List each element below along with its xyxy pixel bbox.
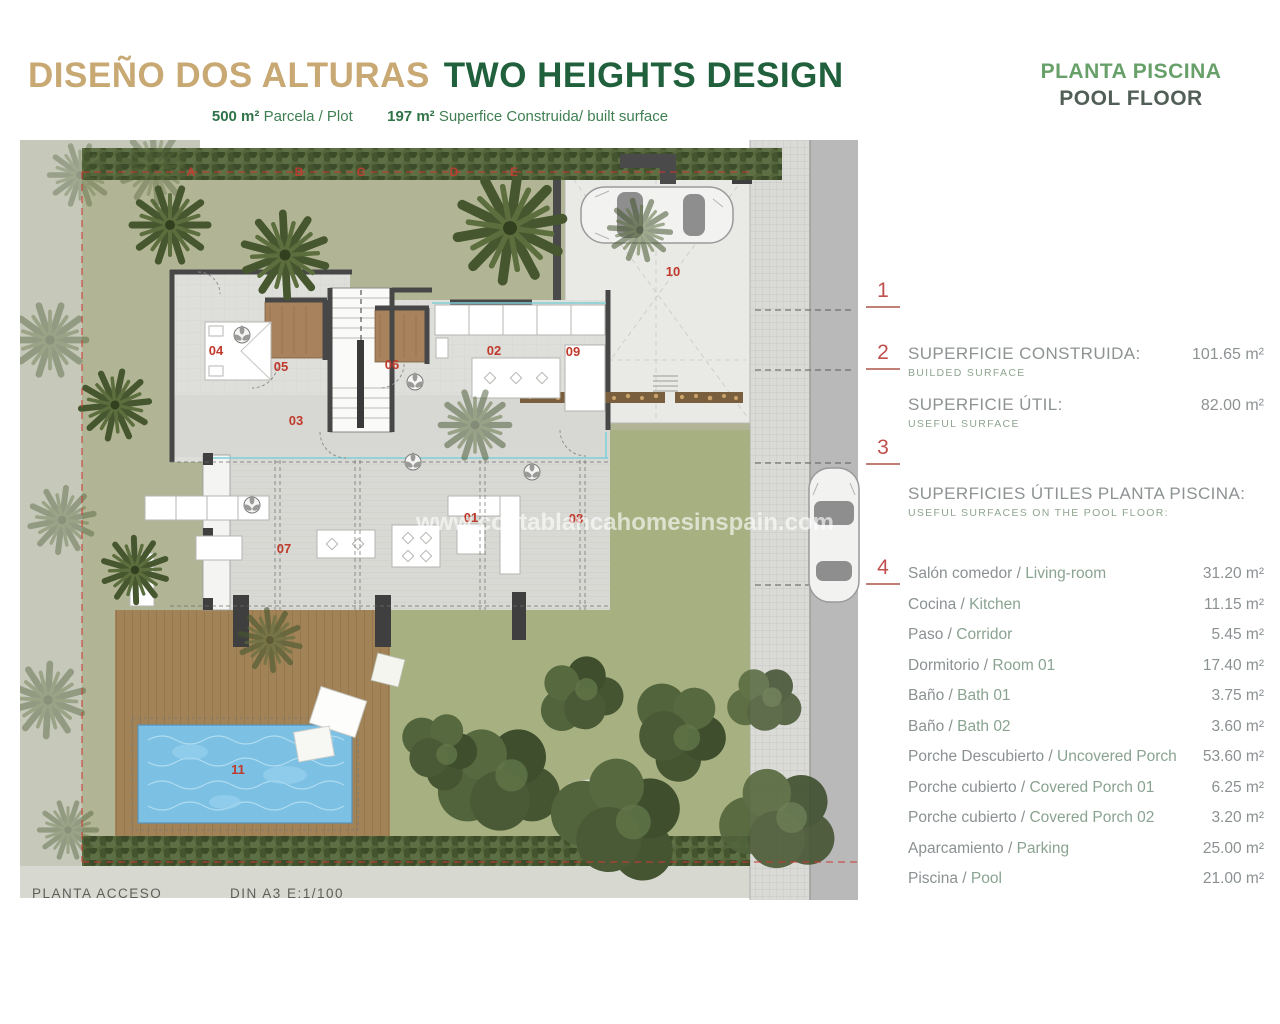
room-name-en: Bath 02 (957, 718, 1010, 735)
title-spanish: DISEÑO DOS ALTURAS (28, 56, 430, 95)
surfaces-section-header: SUPERFICIES ÚTILES PLANTA PISCINA: USEFU… (908, 484, 1264, 519)
surface-row: Dormitorio / Room 0117.40 m² (908, 657, 1264, 688)
pool-deck (115, 610, 390, 840)
boundary-letter-D: D (450, 165, 459, 179)
built-size-label: Superfice Construida/ built surface (439, 108, 668, 125)
room-name-en: Covered Porch 01 (1029, 779, 1154, 796)
room-area-value: 17.40 m² (1203, 657, 1264, 675)
title-english: TWO HEIGHTS DESIGN (444, 56, 844, 95)
useful-surface-label: SUPERFICIE ÚTIL: (908, 395, 1063, 415)
room-name-en: Pool (971, 870, 1002, 887)
useful-surface-value: 82.00 m² (1201, 397, 1264, 415)
room-area-value: 25.00 m² (1203, 840, 1264, 858)
room-number-05: 05 (274, 359, 288, 374)
room-area-value: 3.20 m² (1211, 809, 1264, 827)
plot-subtitle: 500 m² Parcela / Plot 197 m² Superfice C… (20, 108, 860, 125)
floor-name-english: POOL FLOOR (1000, 85, 1262, 112)
surfaces-section-title: SUPERFICIES ÚTILES PLANTA PISCINA: (908, 484, 1264, 504)
room-area-value: 11.15 m² (1204, 596, 1264, 614)
room-area-value: 3.75 m² (1211, 687, 1264, 705)
room-area-value: 6.25 m² (1211, 779, 1264, 797)
room-name-es: Paso (908, 626, 943, 643)
shower-bath-02 (375, 310, 427, 362)
room-name-es: Porche cubierto (908, 779, 1017, 796)
boundary-letter-A: A (187, 165, 196, 179)
boundary-letter-E: E (510, 165, 518, 179)
room-name-en: Uncovered Porch (1057, 748, 1177, 765)
built-surface-sublabel: BUILDED SURFACE (908, 367, 1264, 379)
built-surface-label: SUPERFICIE CONSTRUIDA: (908, 344, 1141, 364)
page-title: DISEÑO DOS ALTURASTWO HEIGHTS DESIGN (28, 56, 844, 96)
surface-row: Baño / Bath 013.75 m² (908, 687, 1264, 718)
index-marker-3: 3 (866, 436, 900, 465)
room-name-es: Porche cubierto (908, 809, 1017, 826)
room-name-es: Aparcamiento (908, 840, 1004, 857)
room-name-en: Room 01 (992, 657, 1055, 674)
room-number-07: 07 (277, 541, 291, 556)
surface-table: Salón comedor / Living-room31.20 m²Cocin… (908, 565, 1264, 901)
parked-car-driveway (581, 187, 733, 243)
surface-row: Paso / Corridor5.45 m² (908, 626, 1264, 657)
plot-size-value: 500 m² (212, 108, 260, 125)
surface-row: Porche cubierto / Covered Porch 023.20 m… (908, 809, 1264, 840)
useful-surface-sublabel: USEFUL SURFACE (908, 418, 1264, 430)
boundary-letter-C: C (357, 165, 366, 179)
room-name-es: Porche Descubierto (908, 748, 1044, 765)
room-number-11: 11 (231, 762, 245, 777)
room-number-10: 10 (666, 264, 680, 279)
room-number-02: 02 (487, 343, 501, 358)
room-name-en: Covered Porch 02 (1029, 809, 1154, 826)
room-name-en: Living-room (1025, 565, 1106, 582)
index-marker-4: 4 (866, 556, 900, 585)
surface-row: Aparcamiento / Parking25.00 m² (908, 840, 1264, 871)
room-name-es: Baño (908, 687, 944, 704)
room-number-03: 03 (289, 413, 303, 428)
useful-surface-summary: SUPERFICIE ÚTIL: 82.00 m² USEFUL SURFACE (908, 395, 1264, 430)
room-name-en: Parking (1017, 840, 1070, 857)
room-area-value: 5.45 m² (1211, 626, 1264, 644)
room-name-es: Baño (908, 718, 944, 735)
built-surface-summary: SUPERFICIE CONSTRUIDA: 101.65 m² BUILDED… (908, 344, 1264, 379)
floor-name: PLANTA PISCINA POOL FLOOR (1000, 58, 1262, 112)
room-name-en: Kitchen (969, 596, 1021, 613)
floor-plan-drawing: ABCDE 0102030405060708091011 www.costabl… (20, 140, 860, 900)
surface-row: Cocina / Kitchen11.15 m² (908, 596, 1264, 627)
room-name-es: Dormitorio (908, 657, 979, 674)
floor-name-spanish: PLANTA PISCINA (1000, 58, 1262, 85)
surface-summary: SUPERFICIE CONSTRUIDA: 101.65 m² BUILDED… (908, 344, 1264, 446)
index-marker-1: 1 (866, 279, 900, 308)
surface-row: Porche Descubierto / Uncovered Porch53.6… (908, 748, 1264, 779)
plan-sheet: DISEÑO DOS ALTURASTWO HEIGHTS DESIGN 500… (0, 0, 1280, 1024)
room-area-value: 3.60 m² (1211, 718, 1264, 736)
built-surface-value: 101.65 m² (1192, 346, 1264, 364)
surfaces-section-subtitle: USEFUL SURFACES ON THE POOL FLOOR: (908, 507, 1264, 519)
room-area-value: 53.60 m² (1203, 748, 1264, 766)
index-marker-2: 2 (866, 341, 900, 370)
surface-row: Salón comedor / Living-room31.20 m² (908, 565, 1264, 596)
room-number-04: 04 (209, 343, 224, 358)
room-number-09: 09 (566, 344, 580, 359)
room-area-value: 21.00 m² (1203, 870, 1264, 888)
plot-size-label: Parcela / Plot (264, 108, 353, 125)
room-name-es: Piscina (908, 870, 958, 887)
room-name-es: Cocina (908, 596, 956, 613)
surface-row: Baño / Bath 023.60 m² (908, 718, 1264, 749)
plan-name-footer: PLANTA ACCESO (32, 886, 162, 901)
room-name-en: Bath 01 (957, 687, 1010, 704)
room-name-en: Corridor (956, 626, 1012, 643)
room-name-es: Salón comedor (908, 565, 1012, 582)
room-area-value: 31.20 m² (1203, 565, 1264, 583)
built-size-value: 197 m² (387, 108, 435, 125)
room-number-06: 06 (385, 357, 399, 372)
scale-footer: DIN A3 E:1/100 (230, 886, 344, 901)
surface-row: Piscina / Pool21.00 m² (908, 870, 1264, 901)
boundary-letter-B: B (295, 165, 304, 179)
watermark: www.costablancahomesinspain.com (415, 509, 834, 536)
surface-row: Porche cubierto / Covered Porch 016.25 m… (908, 779, 1264, 810)
